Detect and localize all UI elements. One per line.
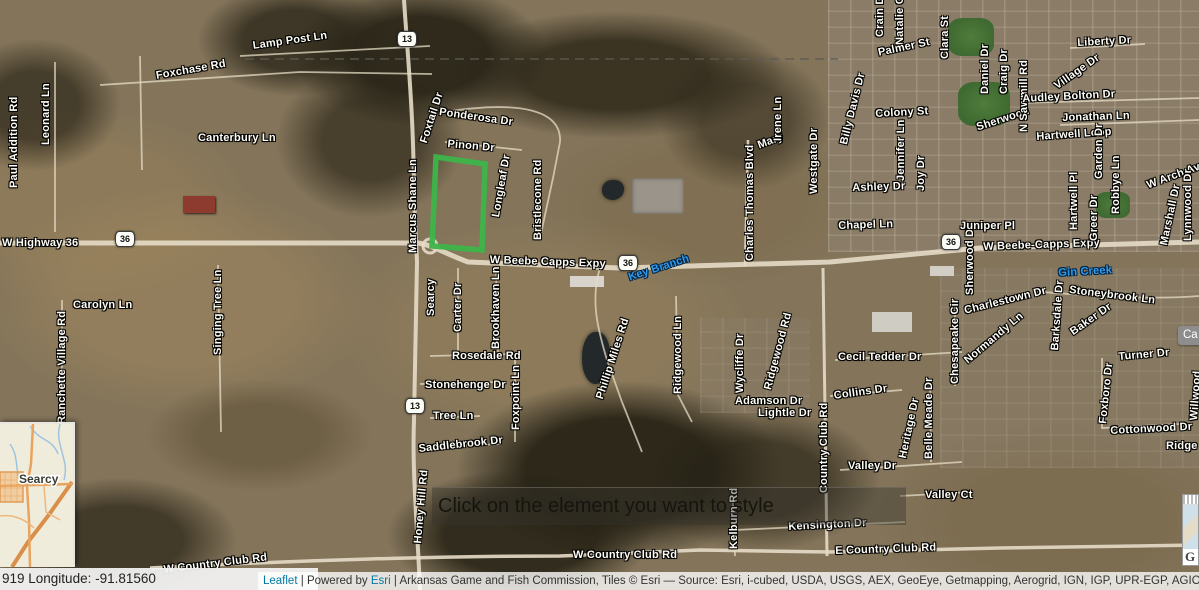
street-label: E Country Club Rd: [835, 541, 937, 557]
street-label: Garden Dr: [1093, 123, 1105, 179]
street-label: W Country Club Rd: [573, 549, 677, 561]
street-label: Chapel Ln: [838, 218, 893, 232]
leaflet-link[interactable]: Leaflet: [263, 575, 298, 587]
street-label: Baker Dr: [1068, 301, 1114, 338]
street-label: Barksdale Dr: [1049, 280, 1066, 351]
highway-shield: 36: [618, 255, 638, 271]
street-label: Valley Dr: [848, 460, 896, 472]
street-label: Pinon Dr: [447, 138, 495, 154]
street-label: Marshall Dr: [1158, 183, 1183, 246]
street-label: Normandy Ln: [962, 310, 1026, 366]
street-label: Foxpoint Ln: [510, 365, 522, 430]
street-label: Crain Dr: [874, 0, 886, 37]
style-picker-overlay: Click on the element you want to style: [432, 487, 906, 525]
widget-logo-letter: G: [1183, 549, 1198, 565]
highway-shield: 13: [397, 31, 417, 47]
water-label: Gin Creek: [1058, 264, 1112, 279]
minimap-city-label: Searcy: [19, 472, 59, 486]
street-label: Ponderosa Dr: [438, 106, 513, 128]
street-label: Carolyn Ln: [73, 299, 132, 311]
street-label: Daniel Dr: [979, 44, 991, 94]
cutoff-button[interactable]: Ca: [1178, 326, 1199, 345]
widget-thumbnail: [1183, 505, 1198, 549]
street-label: Craig Dr: [998, 49, 1010, 94]
minimap-inset[interactable]: Searcy: [0, 422, 75, 567]
street-label: Leonard Ln: [40, 83, 52, 145]
street-label: Searcy: [425, 279, 437, 316]
street-label: Belle Meade Dr: [923, 377, 935, 459]
street-label: W Beebe Capps Expy: [490, 254, 606, 270]
street-label: Jonathan Ln: [1062, 110, 1130, 124]
street-label: Village Dr: [1052, 52, 1102, 92]
street-label: Ridgewood Rd: [762, 311, 794, 391]
street-label: Colony St: [875, 105, 929, 120]
street-label: Ashley Dr: [852, 180, 906, 194]
street-label: Phillip Miles Rd: [594, 317, 632, 401]
street-label: Charles Thomas Blvd: [744, 145, 756, 261]
corner-map-widget[interactable]: G: [1182, 494, 1199, 566]
street-label: Cottonwood Dr: [1110, 421, 1193, 437]
street-label: Valley Ct: [925, 489, 973, 501]
street-label: Sherwood Dr: [964, 224, 976, 295]
highway-shield: 13: [405, 398, 425, 414]
street-label: Turner Dr: [1118, 347, 1170, 363]
attribution-bar: Leaflet | Powered by Esri | Arkansas Gam…: [258, 572, 1199, 590]
street-label: Canterbury Ln: [198, 132, 276, 144]
street-label: Singing Tree Ln: [212, 269, 224, 355]
street-label: Wycliffe Dr: [734, 334, 746, 393]
street-label: Honey Hill Rd: [412, 469, 430, 544]
street-label: Jennifer Ln: [895, 120, 907, 182]
widget-header: [1183, 495, 1198, 505]
street-label: Billy Davis Dr: [838, 71, 867, 145]
esri-link[interactable]: Esri: [371, 575, 391, 587]
street-label: Carter Dr: [452, 283, 464, 333]
street-label: Audley Bolton Dr: [1022, 88, 1116, 105]
street-label: Foxchase Rd: [155, 58, 227, 82]
street-label: Country Club Rd: [818, 403, 830, 493]
attribution-text: | Arkansas Game and Fish Commission, Til…: [394, 575, 1199, 587]
street-label: Foxboro Dr: [1097, 362, 1115, 424]
style-picker-message: Click on the element you want to style: [432, 495, 774, 518]
street-label: W Highway 36: [2, 237, 78, 249]
street-label: Juniper Pl: [960, 220, 1015, 232]
street-label: Ranchette Village Rd: [56, 311, 68, 424]
attribution-divider: |: [301, 575, 304, 587]
street-label: W Beebe-Capps Expy: [983, 237, 1100, 253]
street-label: Tree Ln: [433, 410, 474, 422]
street-label: Lamp Post Ln: [252, 30, 328, 52]
street-label: Collins Dr: [833, 382, 888, 401]
attribution-powered-by: Powered by: [307, 575, 368, 587]
street-label: Lynnwood Dr: [1182, 169, 1194, 241]
street-label: Longleaf Dr: [490, 154, 513, 218]
street-label: Ridgewood Ln: [672, 316, 684, 394]
street-label: Bristlecone Rd: [532, 160, 544, 240]
street-label: Lightle Dr: [758, 407, 811, 419]
street-label: Willwood: [1188, 370, 1199, 420]
highway-shield: 36: [941, 234, 961, 250]
highway-shield: 36: [115, 231, 135, 247]
street-label: Clara St: [939, 16, 951, 59]
street-label: Greer Dr: [1088, 195, 1100, 241]
street-label: Ridge R: [1166, 440, 1199, 452]
street-label: Heritage Dr: [897, 397, 922, 460]
street-label: Joy Dr: [915, 156, 927, 191]
street-label: Irene Ln: [772, 97, 784, 141]
street-label: Marcus Shane Ln: [407, 159, 419, 253]
street-label: Brookhaven Ln: [490, 266, 502, 349]
street-label: Westgate Dr: [808, 128, 820, 194]
street-label: Adamson Dr: [735, 395, 802, 407]
street-label: Liberty Dr: [1077, 34, 1132, 49]
map-viewport: Lamp Post LnFoxchase RdCanterbury LnPaul…: [0, 0, 1199, 590]
street-label: Chesapeake Cir: [949, 299, 961, 384]
street-label: Robbye Ln: [1110, 155, 1122, 214]
street-label: Paul Addition Rd: [8, 97, 20, 188]
street-label: Stoneybrook Ln: [1069, 284, 1156, 306]
street-label: Stonehenge Dr: [425, 379, 506, 391]
street-label: Hartwell Pl: [1068, 172, 1080, 230]
street-label: Cecil Tedder Dr: [838, 351, 922, 363]
street-label: Natalie Cir: [894, 0, 906, 45]
street-label: Rosedale Rd: [452, 350, 521, 362]
street-label: Saddlebrook Dr: [418, 434, 504, 455]
minimap-graphic: Searcy: [0, 424, 73, 567]
